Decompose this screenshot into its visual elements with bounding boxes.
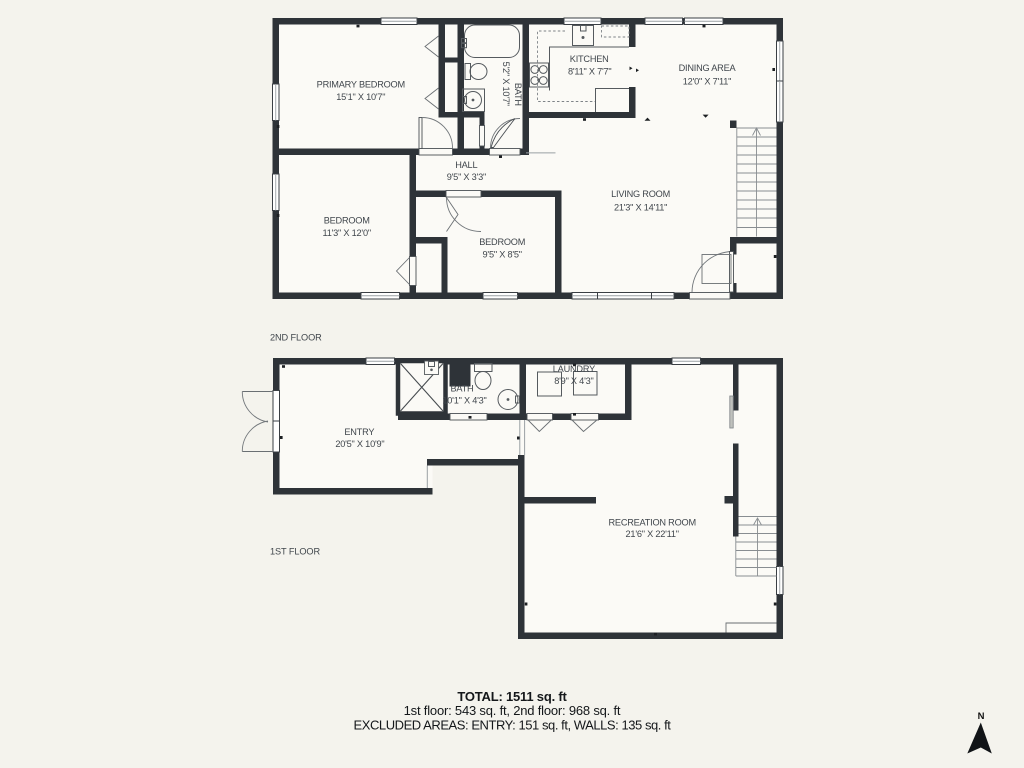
svg-text:EXCLUDED AREAS: ENTRY: 151 sq.: EXCLUDED AREAS: ENTRY: 151 sq. ft, WALLS… (354, 718, 672, 733)
svg-text:BEDROOM: BEDROOM (479, 237, 525, 247)
svg-text:DINING AREA: DINING AREA (679, 63, 737, 73)
svg-text:LAUNDRY: LAUNDRY (553, 364, 595, 374)
svg-text:LIVING ROOM: LIVING ROOM (611, 189, 670, 199)
svg-text:N: N (978, 711, 985, 722)
svg-text:BEDROOM: BEDROOM (324, 216, 370, 226)
svg-text:TOTAL: 1511 sq. ft: TOTAL: 1511 sq. ft (457, 689, 567, 704)
svg-text:20'5" X 10'9": 20'5" X 10'9" (335, 439, 384, 449)
svg-text:1st floor: 543 sq. ft, 2nd flo: 1st floor: 543 sq. ft, 2nd floor: 968 sq… (404, 703, 621, 718)
svg-text:8'11" X 7'7": 8'11" X 7'7" (568, 67, 612, 77)
svg-text:9'5" X 8'5": 9'5" X 8'5" (483, 250, 522, 260)
svg-text:PRIMARY BEDROOM: PRIMARY BEDROOM (317, 80, 405, 90)
svg-text:1ST FLOOR: 1ST FLOOR (270, 547, 320, 557)
svg-text:12'0" X 7'11": 12'0" X 7'11" (683, 77, 731, 87)
svg-text:ENTRY: ENTRY (344, 427, 374, 437)
svg-text:10'1" X 4'3": 10'1" X 4'3" (442, 395, 486, 405)
svg-text:15'1" X 10'7": 15'1" X 10'7" (336, 92, 385, 102)
svg-text:RECREATION ROOM: RECREATION ROOM (609, 518, 696, 528)
svg-text:HALL: HALL (455, 160, 477, 170)
svg-text:21'3" X 14'11": 21'3" X 14'11" (614, 203, 667, 213)
svg-text:2ND FLOOR: 2ND FLOOR (270, 333, 322, 343)
svg-text:BATH: BATH (451, 384, 474, 394)
svg-text:11'3" X 12'0": 11'3" X 12'0" (323, 228, 371, 238)
svg-text:KITCHEN: KITCHEN (570, 54, 609, 64)
svg-text:8'9" X 4'3": 8'9" X 4'3" (554, 376, 593, 386)
svg-text:21'6" X 22'11": 21'6" X 22'11" (626, 529, 679, 539)
svg-text:9'5" X 3'3": 9'5" X 3'3" (447, 172, 486, 182)
